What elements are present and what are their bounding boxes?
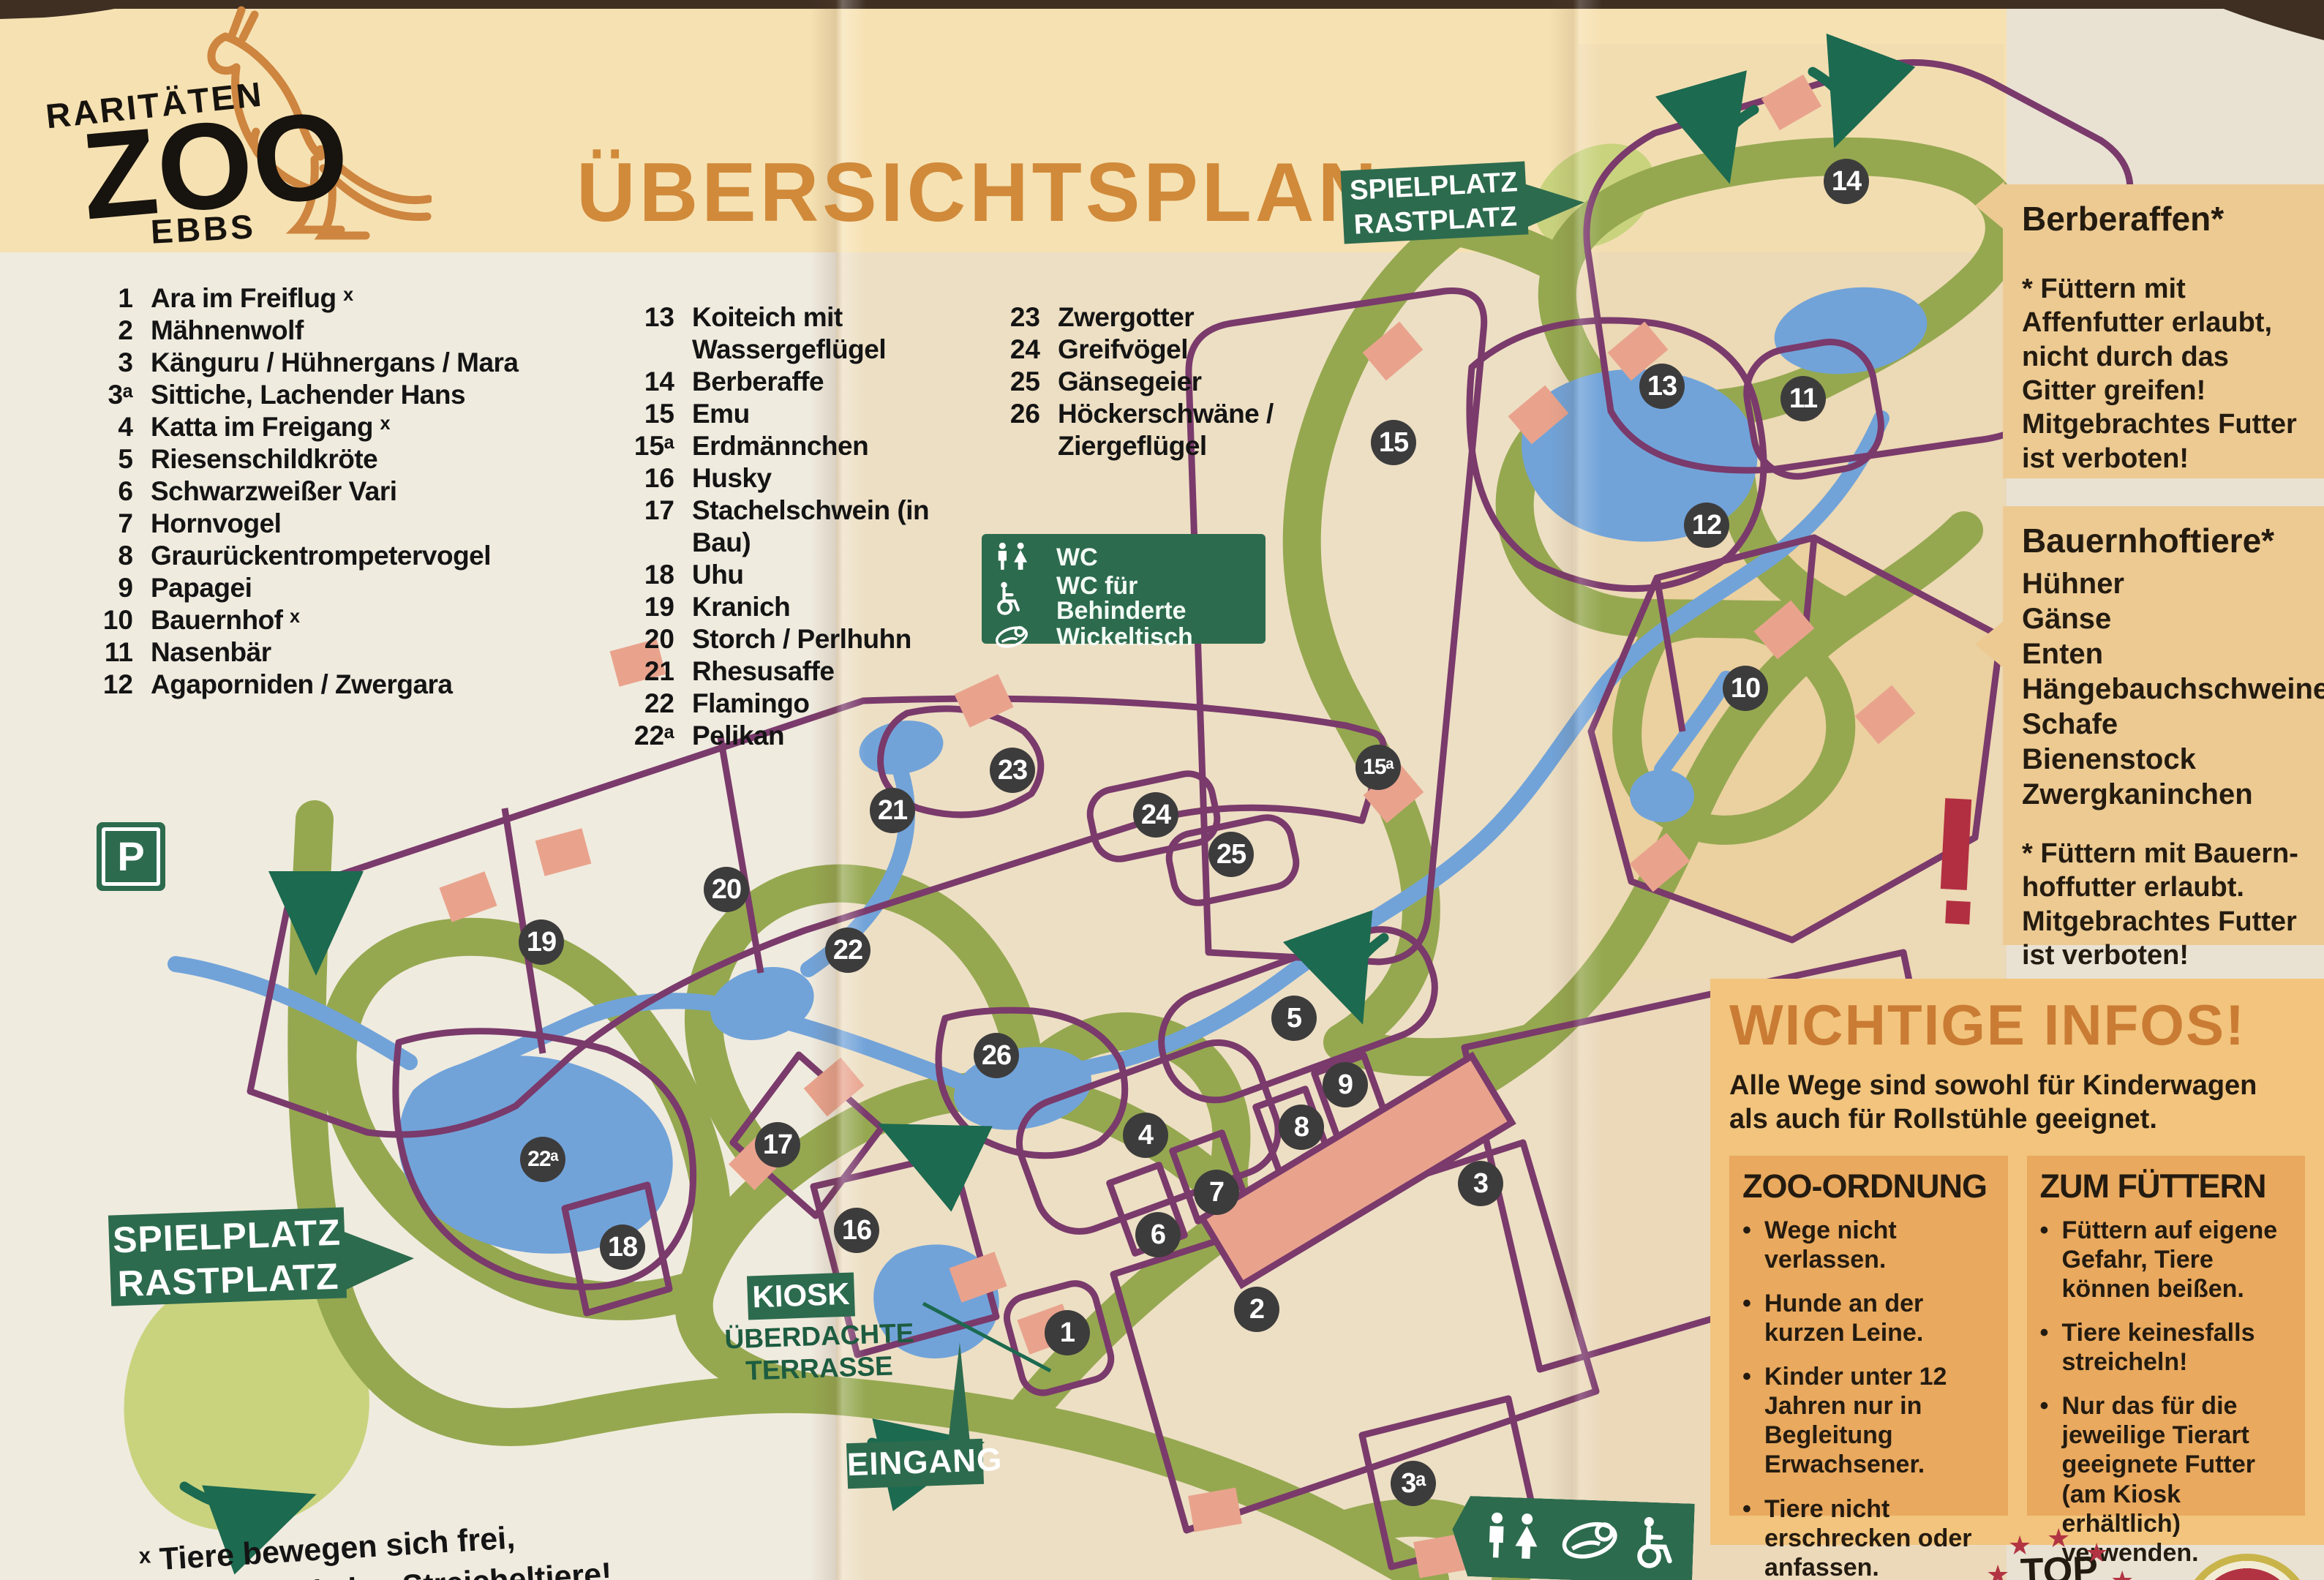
rule-item: •Hunde an der kurzen Leine. [1742, 1289, 1995, 1347]
legend-number: 22 [612, 688, 692, 720]
legend-item: 21 Rhesusaffe [612, 655, 963, 688]
legend-number: 16 [612, 462, 692, 494]
zoo-ordnung-panel: ZOO-ORDNUNG •Wege nicht verlassen.•Hunde… [1729, 1156, 2008, 1516]
wc-row-icon [993, 623, 1045, 651]
bauernhoftiere-info-box: Bauernhoftiere* HühnerGänseEntenHängebau… [2003, 506, 2324, 945]
legend-label: Katta im Freigang ˣ [151, 412, 390, 442]
berberaffen-title: Berberaffen* [2022, 199, 2305, 238]
legend-number: 6 [70, 475, 151, 508]
marker-number: 12 [1692, 510, 1721, 541]
zum-fuettern-panel: ZUM FÜTTERN •Füttern auf eigene Gefahr, … [2027, 1156, 2306, 1516]
legend-label: Riesenschildkröte [151, 444, 377, 474]
map-marker: 15 [1371, 420, 1416, 465]
award-star-icon: ★ [1986, 1560, 2009, 1580]
legend-label: Flamingo [692, 688, 809, 718]
map-marker: 1 [1045, 1310, 1090, 1355]
marker-number: 24 [1141, 800, 1170, 831]
bauernhoftiere-animal-list: HühnerGänseEntenHängebauchschweineSchafe… [2022, 566, 2305, 812]
marker-number: 4 [1138, 1120, 1153, 1151]
marker-number: 10 [1731, 673, 1760, 704]
zoo-map-page: RARITÄTEN ZOO EBBS ÜBERSICHTSPLAN 1 Ara … [0, 0, 2324, 1580]
legend-label: Agaporniden / Zwergara [151, 669, 453, 699]
legend-label: Nasenbär [151, 637, 271, 667]
legend-item: 15ᵃ Erdmännchen [612, 430, 963, 462]
page-title: ÜBERSICHTSPLAN [576, 145, 1380, 241]
legend-label: Graurückentrompetervogel [151, 541, 491, 571]
legend-number: 26 [977, 398, 1058, 430]
marker-number: 21 [878, 795, 907, 827]
map-marker: 11 [1780, 376, 1826, 421]
rule-item: •Wege nicht verlassen. [1742, 1216, 1995, 1274]
marker-number: 23 [998, 755, 1027, 786]
legend-label-line2: Wassergeflügel [692, 334, 886, 366]
logo-text-ebbs: EBBS [150, 206, 257, 251]
legend-item: 12 Agaporniden / Zwergara [70, 669, 568, 701]
legend-label: Mähnenwolf [151, 315, 304, 345]
map-marker: 24 [1133, 792, 1178, 838]
legend-label: Storch / Perlhuhn [692, 624, 911, 654]
legend-item: 1 Ara im Freiflug ˣ [70, 282, 568, 315]
animal-item: Hängebauchschweine [2022, 671, 2305, 707]
legend-number: 9 [70, 572, 151, 604]
marker-number: 1 [1060, 1317, 1075, 1349]
award-star-icon: ★ [2047, 1523, 2070, 1554]
berberaffen-info-box: Berberaffen* * Füttern mit Affenfutter e… [2003, 184, 2324, 478]
legend-number: 10 [70, 604, 151, 636]
map-marker: 3 [1458, 1161, 1503, 1206]
award-star-icon: ★ [2008, 1530, 2031, 1561]
legend-number: 20 [612, 623, 692, 655]
legend-number: 5 [70, 443, 151, 475]
legend-label: Pelikan [692, 721, 784, 750]
legend-item: 15 Emu [612, 398, 963, 430]
legend-number: 4 [70, 411, 151, 443]
legend-label: Känguru / Hühnergans / Mara [151, 347, 519, 377]
legend-item: 22ᵃ Pelikan [612, 720, 963, 752]
legend-item: 16 Husky [612, 462, 963, 494]
map-marker: 5 [1271, 996, 1317, 1041]
legend-number: 13 [612, 301, 692, 334]
legend-label: Zwergotter [1058, 302, 1194, 332]
animal-item: Zwergkaninchen [2022, 777, 2305, 812]
map-marker: 4 [1123, 1113, 1168, 1158]
map-marker: 3ᵃ [1391, 1461, 1436, 1506]
legend-label-line2: Ziergeflügel [1058, 430, 1274, 462]
wc-row-label: WC für Behinderte [1056, 573, 1254, 623]
legend-label: Höckerschwäne / [1058, 399, 1274, 429]
legend-number: 15 [612, 398, 692, 430]
marker-number: 3 [1473, 1168, 1488, 1200]
bauernhoftiere-footnote: * Füttern mit Bauern­hoffutter erlaubt. … [2022, 837, 2305, 972]
marker-number: 25 [1216, 839, 1246, 870]
map-marker: 23 [990, 748, 1035, 793]
zoo-ordnung-title: ZOO-ORDNUNG [1742, 1167, 1995, 1205]
legend-item: 9 Papagei [70, 572, 568, 604]
marker-number: 20 [712, 874, 741, 906]
zum-fuettern-title: ZUM FÜTTERN [2040, 1167, 2293, 1205]
legend-number: 8 [70, 540, 151, 572]
map-marker: 25 [1208, 832, 1254, 877]
marker-number: 17 [763, 1129, 792, 1161]
marker-number: 6 [1151, 1219, 1165, 1251]
legend-item: 4 Katta im Freigang ˣ [70, 411, 568, 443]
wc-row-icon [993, 541, 1045, 573]
legend-number: 15ᵃ [612, 430, 692, 462]
marker-number: 11 [1789, 383, 1817, 415]
legend-item: 23 Zwergotter [977, 301, 1321, 334]
map-marker: 20 [704, 867, 749, 912]
legend-item: 13 Koiteich mitWassergeflügel [612, 301, 963, 366]
map-marker: 19 [519, 919, 564, 965]
parking-sign: P [97, 822, 165, 891]
legend-item: 2 Mähnenwolf [70, 315, 568, 347]
wc-row-icon [993, 582, 1045, 615]
parking-icon: P [102, 827, 160, 886]
legend-item: 26 Höckerschwäne /Ziergeflügel [977, 398, 1321, 462]
map-marker: 16 [834, 1208, 879, 1253]
legend-number: 25 [977, 366, 1058, 398]
legend-label: Rhesusaffe [692, 656, 834, 686]
rule-item: •Nur das für die jeweilige Tierart geeig… [2040, 1391, 2293, 1568]
legend-label: Stachelschwein (in Bau) [692, 495, 929, 557]
marker-number: 16 [842, 1215, 871, 1246]
legend-label: Husky [692, 463, 772, 493]
map-marker: 22ᵃ [520, 1137, 565, 1182]
legend-item: 20 Storch / Perlhuhn [612, 623, 963, 655]
paper-fold-right [1549, 0, 1602, 1580]
map-marker: 26 [974, 1033, 1019, 1078]
berberaffen-body: * Füttern mit Affenfutter erlaubt, nicht… [2022, 272, 2305, 475]
legend-number: 14 [612, 366, 692, 398]
marker-number: 22 [833, 935, 862, 966]
legend-label: Hornvogel [151, 508, 281, 538]
legend-number: 18 [612, 559, 692, 591]
legend-item: 22 Flamingo [612, 688, 963, 720]
map-marker: 22 [825, 928, 870, 973]
zoo-ordnung-bullets: •Wege nicht verlassen.•Hunde an der kurz… [1742, 1216, 1995, 1580]
legend-column-3: 23 Zwergotter 24 Greifvögel 25 Gänsegeie… [977, 301, 1321, 462]
marker-number: 22ᵃ [527, 1147, 558, 1172]
wc-legend-row: WC [993, 541, 1254, 573]
legend-label: Koiteich mit [692, 302, 843, 332]
legend-label: Berberaffe [692, 366, 824, 396]
legend-column-2: 13 Koiteich mitWassergeflügel 14 Berbera… [612, 301, 963, 752]
marker-number: 9 [1338, 1069, 1353, 1101]
wc-couple-icon [1481, 1509, 1548, 1567]
wc-legend-box: WC WC für Behinderte Wickeltisch [982, 534, 1266, 644]
legend-number: 17 [612, 494, 692, 527]
map-marker: 12 [1684, 503, 1729, 548]
legend-item: 19 Kranich [612, 591, 963, 623]
alert-exclamation-dot [1945, 900, 1971, 925]
award-star-icon: ★ [2085, 1538, 2108, 1568]
marker-number: 14 [1832, 166, 1861, 197]
map-marker: 6 [1135, 1212, 1181, 1257]
playground-banner-left: SPIELPLATZRASTPLATZ [108, 1207, 347, 1306]
map-marker: 10 [1723, 666, 1768, 711]
legend-number: 3 [70, 347, 151, 379]
legend-item: 10 Bauernhof ˣ [70, 604, 568, 636]
legend-label: Ara im Freiflug ˣ [151, 283, 353, 313]
marker-number: 26 [982, 1040, 1011, 1072]
animal-item: Schafe [2022, 707, 2305, 742]
marker-number: 18 [608, 1232, 637, 1263]
wc-row-label: WC [1056, 545, 1098, 570]
map-marker: 8 [1279, 1105, 1324, 1150]
playground-banner-top: SPIELPLATZRASTPLATZ [1341, 161, 1529, 244]
marker-number: 19 [527, 927, 556, 958]
marker-number: 15ᵃ [1363, 755, 1394, 780]
legend-label: Emu [692, 399, 750, 429]
wichtige-infos-subtitle: Alle Wege sind sowohl für Kinderwagen al… [1729, 1069, 2293, 1137]
wheelchair-icon [1631, 1514, 1678, 1571]
legend-item: 18 Uhu [612, 559, 963, 591]
legend-number: 3ᵃ [70, 379, 151, 411]
wc-legend-row: Wickeltisch [993, 623, 1254, 651]
map-marker: 21 [870, 788, 915, 833]
legend-number: 22ᵃ [612, 720, 692, 752]
legend-item: 11 Nasenbär [70, 636, 568, 669]
legend-item: 6 Schwarzweißer Vari [70, 475, 568, 508]
legend-number: 2 [70, 315, 151, 347]
animal-item: Hühner [2022, 566, 2305, 601]
map-marker: 7 [1194, 1170, 1239, 1215]
legend-label: Schwarzweißer Vari [151, 476, 397, 506]
legend-item: 25 Gänsegeier [977, 366, 1321, 398]
marker-number: 13 [1647, 371, 1677, 402]
marker-number: 7 [1209, 1177, 1224, 1208]
map-marker: 2 [1234, 1287, 1279, 1332]
wichtige-infos-title: WICHTIGE INFOS! [1729, 992, 2305, 1058]
legend-number: 24 [977, 334, 1058, 366]
wc-location-banner [1451, 1495, 1695, 1580]
marker-number: 5 [1287, 1003, 1301, 1034]
legend-item: 3 Känguru / Hühnergans / Mara [70, 347, 568, 379]
legend-item: 24 Greifvögel [977, 334, 1321, 366]
legend-label: Gänsegeier [1058, 366, 1202, 396]
legend-item: 17 Stachelschwein (in Bau) [612, 494, 963, 559]
map-marker: 14 [1824, 159, 1869, 204]
map-marker: 18 [600, 1224, 645, 1270]
legend-item: 7 Hornvogel [70, 508, 568, 540]
wichtige-infos-box: WICHTIGE INFOS! Alle Wege sind sowohl fü… [1710, 979, 2324, 1545]
legend-number: 19 [612, 591, 692, 623]
bauernhoftiere-title: Bauernhoftiere* [2022, 521, 2305, 560]
rule-item: •Tiere keinesfalls streicheln! [2040, 1318, 2293, 1377]
legend-item: 8 Graurückentrompetervogel [70, 540, 568, 572]
kiosk-banner: KIOSK [747, 1272, 855, 1320]
rule-item: •Tiere nicht erschrecken oder anfassen. [1742, 1494, 1995, 1580]
wc-row-label: Wickeltisch [1056, 625, 1193, 650]
marker-number: 8 [1294, 1112, 1309, 1143]
legend-number: 7 [70, 508, 151, 540]
legend-label: Bauernhof ˣ [151, 605, 299, 635]
legend-number: 21 [612, 655, 692, 688]
marker-number: 15 [1379, 427, 1408, 459]
legend-number: 23 [977, 301, 1058, 334]
legend-number: 11 [70, 636, 151, 669]
legend-label: Erdmännchen [692, 431, 868, 461]
legend-number: 12 [70, 669, 151, 701]
entrance-banner: EINGANG [846, 1439, 984, 1489]
legend-item: 5 Riesenschildkröte [70, 443, 568, 475]
legend-column-1: 1 Ara im Freiflug ˣ 2 Mähnenwolf 3 Kängu… [70, 282, 568, 701]
rule-item: •Kinder unter 12 Jahren nur in Begleitun… [1742, 1362, 1995, 1479]
map-marker: 13 [1639, 364, 1685, 409]
alert-exclamation-icon [1941, 798, 1971, 890]
award-star-icon: ★ [2110, 1565, 2134, 1580]
marker-number: 2 [1249, 1294, 1264, 1325]
legend-item: 3ᵃ Sittiche, Lachender Hans [70, 379, 568, 411]
zum-fuettern-bullets: •Füttern auf eigene Gefahr, Tiere können… [2040, 1216, 2293, 1568]
legend-label: Greifvögel [1058, 334, 1188, 364]
legend-label: Kranich [692, 592, 790, 622]
animal-item: Gänse [2022, 601, 2305, 636]
animal-item: Enten [2022, 636, 2305, 671]
wc-legend-row: WC für Behinderte [993, 573, 1254, 623]
wickeltisch-icon [1560, 1516, 1620, 1564]
marker-number: 3ᵃ [1401, 1468, 1425, 1500]
legend-item: 14 Berberaffe [612, 366, 963, 398]
map-marker: 9 [1323, 1062, 1368, 1107]
legend-label: Uhu [692, 560, 743, 590]
legend-label: Sittiche, Lachender Hans [151, 380, 465, 410]
legend-label: Papagei [151, 573, 252, 603]
animal-item: Bienenstock [2022, 742, 2305, 777]
rule-item: •Füttern auf eigene Gefahr, Tiere können… [2040, 1216, 2293, 1303]
map-marker: 15ᵃ [1355, 745, 1401, 790]
map-marker: 17 [755, 1122, 800, 1167]
legend-number: 1 [70, 282, 151, 315]
